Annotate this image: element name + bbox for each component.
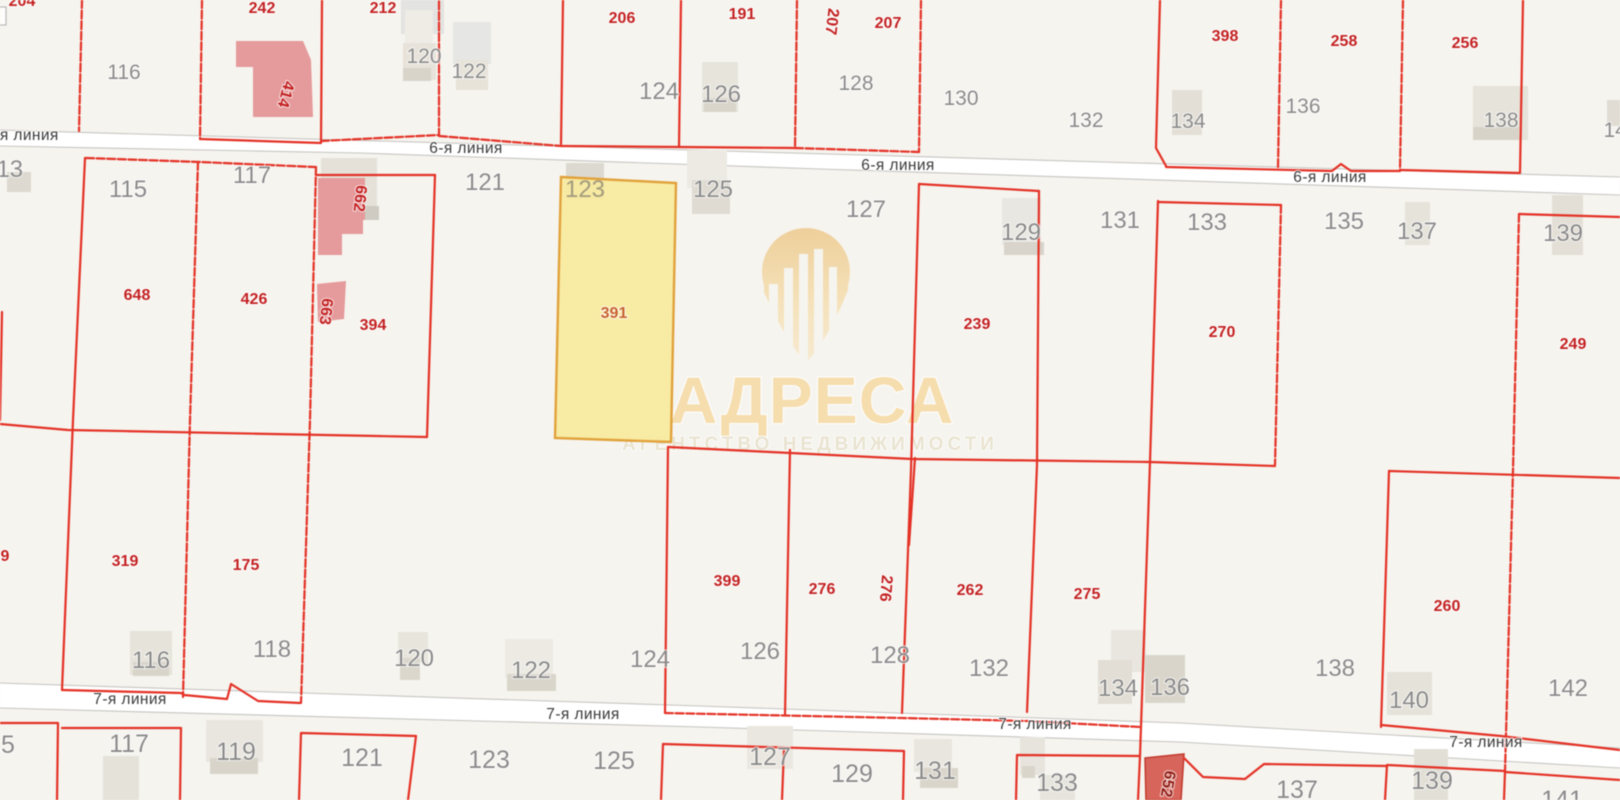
- svg-text:191: 191: [729, 6, 756, 23]
- svg-text:136: 136: [1285, 95, 1320, 118]
- svg-text:АГЕНТСТВО НЕДВИЖИМОСТИ: АГЕНТСТВО НЕДВИЖИМОСТИ: [622, 434, 998, 455]
- svg-text:115: 115: [109, 176, 147, 203]
- svg-text:127: 127: [846, 196, 886, 223]
- svg-text:121: 121: [465, 169, 505, 196]
- svg-text:256: 256: [1452, 35, 1479, 52]
- svg-text:391: 391: [601, 305, 628, 322]
- svg-text:142: 142: [1548, 675, 1588, 702]
- svg-text:399: 399: [714, 573, 741, 590]
- svg-text:125: 125: [693, 176, 733, 203]
- svg-text:204: 204: [9, 0, 36, 10]
- svg-text:262: 262: [957, 582, 984, 599]
- svg-text:7-я линия: 7-я линия: [998, 716, 1071, 733]
- svg-text:175: 175: [233, 557, 260, 574]
- svg-text:136: 136: [1150, 674, 1190, 701]
- svg-text:212: 212: [370, 0, 397, 17]
- svg-text:6-я линия: 6-я линия: [0, 127, 59, 144]
- svg-text:394: 394: [360, 317, 387, 334]
- svg-text:120: 120: [394, 645, 434, 672]
- svg-text:663: 663: [316, 297, 336, 325]
- svg-text:118: 118: [253, 636, 291, 663]
- svg-text:137: 137: [1397, 218, 1437, 245]
- svg-text:140: 140: [1389, 687, 1429, 714]
- svg-text:276: 276: [876, 574, 895, 602]
- svg-text:239: 239: [964, 316, 991, 333]
- svg-text:207: 207: [821, 7, 841, 36]
- svg-text:122: 122: [451, 60, 486, 83]
- svg-text:309: 309: [0, 548, 9, 565]
- svg-text:6-я линия: 6-я линия: [429, 140, 502, 157]
- svg-text:131: 131: [914, 757, 956, 785]
- svg-text:132: 132: [969, 655, 1009, 682]
- svg-text:139: 139: [1543, 220, 1583, 247]
- svg-text:260: 260: [1434, 598, 1461, 615]
- svg-text:206: 206: [609, 10, 636, 27]
- svg-text:140: 140: [1603, 119, 1620, 142]
- svg-text:128: 128: [838, 72, 873, 95]
- svg-text:128: 128: [870, 642, 910, 669]
- svg-text:122: 122: [511, 657, 551, 684]
- svg-text:319: 319: [112, 553, 139, 570]
- svg-text:134: 134: [1098, 675, 1138, 702]
- svg-text:124: 124: [630, 646, 670, 673]
- svg-text:133: 133: [1036, 769, 1078, 797]
- svg-text:270: 270: [1209, 324, 1236, 341]
- svg-text:134: 134: [1170, 110, 1205, 133]
- svg-text:131: 131: [1100, 207, 1140, 234]
- svg-text:116: 116: [132, 647, 170, 674]
- svg-text:120: 120: [406, 45, 441, 68]
- svg-text:119: 119: [216, 738, 256, 766]
- svg-text:137: 137: [1276, 776, 1318, 800]
- svg-text:258: 258: [1331, 33, 1358, 50]
- svg-text:6-я линия: 6-я линия: [861, 157, 934, 174]
- svg-text:276: 276: [809, 581, 836, 598]
- svg-text:116: 116: [107, 61, 140, 84]
- svg-text:242: 242: [249, 0, 276, 17]
- svg-text:7-я линия: 7-я линия: [1449, 734, 1522, 751]
- svg-text:138: 138: [1483, 109, 1518, 132]
- svg-text:662: 662: [350, 184, 370, 212]
- svg-text:113: 113: [0, 156, 23, 183]
- svg-text:126: 126: [701, 81, 741, 108]
- svg-text:123: 123: [468, 746, 510, 774]
- svg-text:130: 130: [943, 87, 978, 110]
- svg-text:275: 275: [1074, 586, 1101, 603]
- svg-text:6-я линия: 6-я линия: [1293, 169, 1366, 186]
- svg-text:123: 123: [565, 176, 605, 203]
- svg-text:139: 139: [1411, 767, 1453, 795]
- svg-text:7-я линия: 7-я линия: [93, 691, 166, 708]
- svg-text:426: 426: [241, 291, 268, 308]
- svg-text:115: 115: [0, 731, 15, 759]
- svg-text:127: 127: [749, 743, 791, 771]
- svg-text:117: 117: [109, 730, 149, 758]
- svg-text:126: 126: [740, 638, 780, 665]
- svg-text:133: 133: [1187, 209, 1227, 236]
- svg-text:129: 129: [831, 760, 873, 788]
- svg-text:138: 138: [1315, 655, 1355, 682]
- svg-text:141: 141: [1541, 786, 1583, 800]
- svg-text:7-я линия: 7-я линия: [546, 706, 619, 723]
- svg-text:135: 135: [1324, 208, 1364, 235]
- svg-text:249: 249: [1560, 336, 1587, 353]
- svg-text:125: 125: [593, 747, 635, 775]
- svg-text:132: 132: [1068, 109, 1103, 132]
- svg-text:398: 398: [1212, 28, 1239, 45]
- svg-text:121: 121: [341, 744, 383, 772]
- svg-text:129: 129: [1001, 219, 1041, 246]
- svg-text:124: 124: [639, 78, 679, 105]
- svg-text:648: 648: [124, 287, 151, 304]
- svg-text:207: 207: [875, 15, 902, 32]
- svg-text:117: 117: [233, 162, 271, 189]
